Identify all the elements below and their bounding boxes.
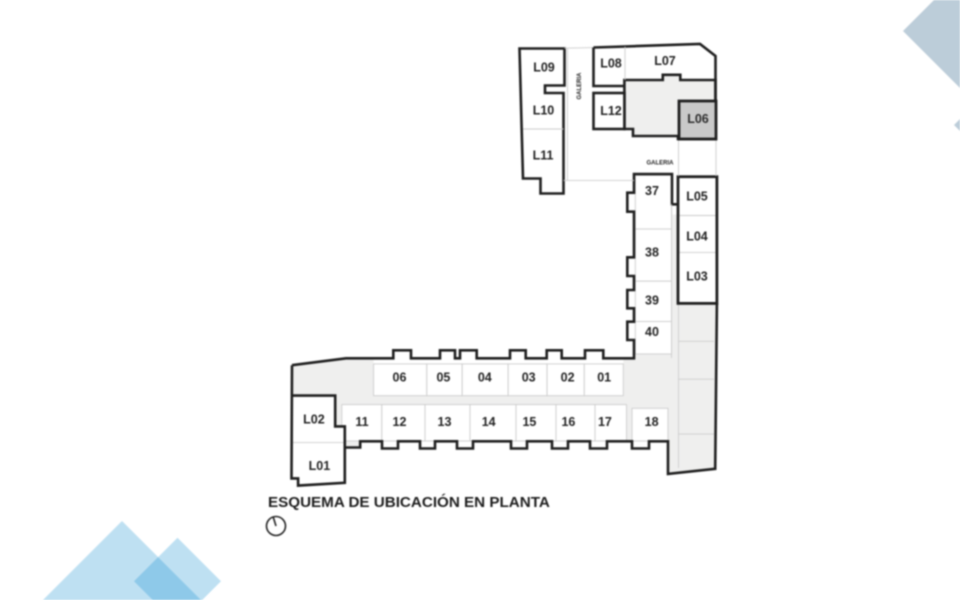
svg-text:02: 02 <box>561 371 575 385</box>
svg-text:04: 04 <box>478 371 492 385</box>
svg-text:12: 12 <box>393 415 407 429</box>
svg-text:L12: L12 <box>600 104 622 118</box>
svg-text:L02: L02 <box>303 412 325 426</box>
svg-text:ESQUEMA DE UBICACIÓN EN PLANTA: ESQUEMA DE UBICACIÓN EN PLANTA <box>268 493 550 511</box>
svg-text:L01: L01 <box>309 459 331 473</box>
svg-text:L06: L06 <box>687 112 709 126</box>
svg-text:05: 05 <box>436 371 450 385</box>
svg-text:11: 11 <box>355 415 368 429</box>
svg-text:01: 01 <box>597 371 611 385</box>
svg-text:L11: L11 <box>533 149 554 163</box>
svg-text:L07: L07 <box>654 54 676 68</box>
svg-text:14: 14 <box>482 415 496 429</box>
svg-text:37: 37 <box>645 184 659 198</box>
svg-text:L04: L04 <box>686 229 708 243</box>
svg-text:06: 06 <box>393 371 407 385</box>
svg-text:L03: L03 <box>686 269 708 283</box>
svg-text:L05: L05 <box>686 189 708 203</box>
svg-text:GALERIA: GALERIA <box>647 161 675 167</box>
svg-text:13: 13 <box>438 415 452 429</box>
svg-text:L08: L08 <box>600 57 622 71</box>
svg-text:15: 15 <box>522 415 536 429</box>
svg-text:16: 16 <box>561 415 575 429</box>
svg-text:38: 38 <box>645 246 659 260</box>
svg-text:40: 40 <box>645 325 659 339</box>
svg-text:GALERIA: GALERIA <box>577 72 583 100</box>
svg-text:39: 39 <box>645 294 659 308</box>
svg-text:L09: L09 <box>533 61 555 75</box>
svg-text:18: 18 <box>645 415 659 429</box>
svg-text:03: 03 <box>522 371 536 385</box>
svg-text:L10: L10 <box>533 104 555 118</box>
svg-text:17: 17 <box>598 415 612 429</box>
